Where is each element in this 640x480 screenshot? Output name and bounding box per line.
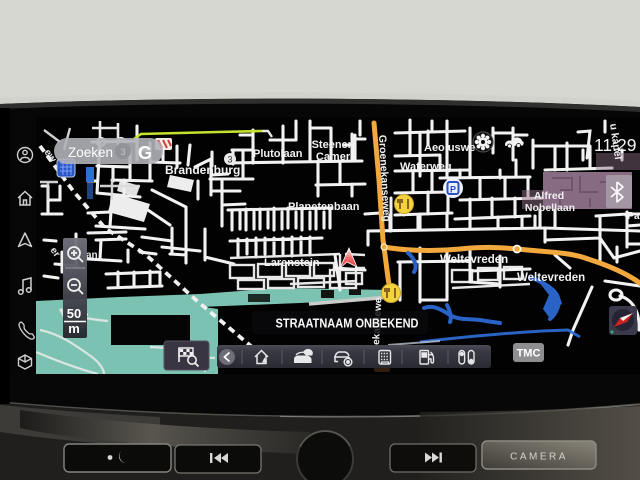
svg-text:Aeoluswe: Aeoluswe	[424, 142, 475, 154]
svg-text:STRAATNAAM ONBEKEND: STRAATNAAM ONBEKEND	[276, 316, 419, 331]
svg-text:Weltevreden: Weltevreden	[517, 272, 585, 284]
svg-text:m: m	[68, 321, 80, 336]
svg-text:Camer: Camer	[316, 151, 351, 163]
svg-text:Plutolaan: Plutolaan	[253, 148, 303, 160]
svg-text:Larenstein: Larenstein	[264, 257, 320, 269]
svg-text:CAMERA: CAMERA	[510, 452, 568, 463]
svg-text:Waterweg: Waterweg	[400, 161, 452, 173]
svg-text:an: an	[86, 250, 98, 261]
svg-text:Planetenbaan: Planetenbaan	[288, 201, 360, 213]
svg-text:G: G	[138, 143, 152, 163]
svg-text:11:29: 11:29	[594, 135, 637, 155]
svg-text:Zoeken: Zoeken	[68, 145, 113, 160]
svg-text:50: 50	[67, 306, 81, 321]
svg-text:Nobellaan: Nobellaan	[525, 202, 575, 214]
svg-text:3: 3	[120, 147, 125, 157]
svg-text:P: P	[450, 185, 456, 195]
svg-text:TMC: TMC	[517, 348, 541, 360]
svg-text:·Pa: ·Pa	[624, 211, 640, 222]
svg-text:Brandenburg: Brandenburg	[165, 163, 240, 177]
svg-text:Weltevreden: Weltevreden	[440, 254, 508, 266]
svg-text:Alfred: Alfred	[534, 190, 564, 202]
svg-text:Steenen: Steenen	[312, 139, 355, 151]
